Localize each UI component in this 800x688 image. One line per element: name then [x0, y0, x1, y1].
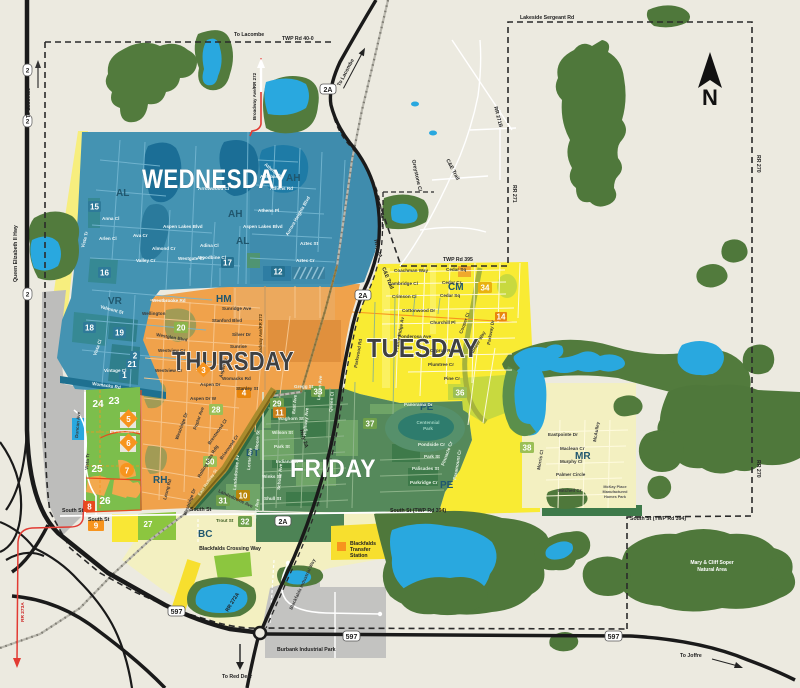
svg-text:TWP Rd 40-0: TWP Rd 40-0 — [282, 36, 314, 42]
svg-text:Maclean Cr: Maclean Cr — [560, 446, 585, 451]
svg-text:Aspen Lakes Blvd: Aspen Lakes Blvd — [163, 224, 203, 229]
svg-text:27: 27 — [144, 520, 153, 529]
svg-text:Shull St: Shull St — [264, 496, 282, 501]
svg-text:Station: Station — [350, 553, 368, 559]
svg-text:Aztec St: Aztec St — [300, 241, 319, 246]
svg-text:Cedar Sq: Cedar Sq — [446, 267, 466, 272]
svg-text:PE: PE — [440, 480, 454, 491]
svg-text:23: 23 — [108, 396, 120, 407]
svg-text:Stanford Blvd: Stanford Blvd — [212, 318, 242, 323]
svg-text:Aspen Lakes Blvd: Aspen Lakes Blvd — [243, 224, 283, 229]
svg-text:AH: AH — [228, 209, 242, 220]
svg-text:Sunridge Ave: Sunridge Ave — [222, 306, 252, 311]
svg-text:Stanley St: Stanley St — [236, 386, 259, 391]
svg-text:Ava Cr: Ava Cr — [133, 233, 148, 238]
svg-text:Queen Elizabeth II Hwy: Queen Elizabeth II Hwy — [13, 225, 19, 282]
svg-text:Indiana St: Indiana St — [276, 459, 298, 464]
svg-text:Westview Cr: Westview Cr — [158, 348, 185, 353]
svg-text:To Lacombe: To Lacombe — [26, 88, 32, 118]
svg-text:25: 25 — [91, 464, 103, 475]
svg-text:FRIDAY: FRIDAY — [290, 455, 376, 483]
svg-text:19: 19 — [115, 329, 124, 338]
svg-text:Arlen Cl: Arlen Cl — [99, 236, 117, 241]
svg-text:Pine Cr: Pine Cr — [444, 376, 460, 381]
svg-text:Crimson Cl: Crimson Cl — [392, 294, 417, 299]
svg-text:Blackfalds Crossing Way: Blackfalds Crossing Way — [199, 546, 261, 552]
svg-text:2: 2 — [133, 352, 138, 361]
svg-text:Cottonwood Dr: Cottonwood Dr — [402, 308, 435, 313]
svg-text:South St: South St — [62, 508, 84, 514]
svg-text:597: 597 — [608, 634, 620, 641]
svg-text:Lakeside Sergeant Rd: Lakeside Sergeant Rd — [520, 15, 574, 21]
svg-text:Parkridge Cr: Parkridge Cr — [410, 480, 438, 485]
svg-text:31: 31 — [219, 497, 228, 506]
svg-text:Trout St: Trout St — [216, 518, 234, 523]
svg-text:Anna Cl: Anna Cl — [102, 216, 119, 221]
svg-text:Park St: Park St — [424, 454, 440, 459]
svg-text:To Red Deer: To Red Deer — [222, 674, 252, 680]
svg-text:2: 2 — [26, 119, 30, 126]
svg-text:Homes Park: Homes Park — [604, 495, 627, 499]
svg-text:Park: Park — [423, 426, 433, 431]
svg-text:South St: South St — [88, 517, 110, 523]
svg-text:Aspen Dr: Aspen Dr — [200, 382, 221, 387]
svg-text:37: 37 — [366, 420, 375, 429]
svg-text:Sunrise: Sunrise — [230, 344, 247, 349]
svg-text:14: 14 — [497, 313, 506, 322]
svg-text:Centennial: Centennial — [416, 420, 439, 425]
svg-text:597: 597 — [171, 609, 183, 616]
svg-text:Eastpointe Dr: Eastpointe Dr — [548, 432, 578, 437]
svg-text:28: 28 — [212, 406, 221, 415]
svg-text:2A: 2A — [279, 519, 288, 526]
svg-text:2: 2 — [26, 68, 30, 75]
svg-text:South St (TWP Rd 394): South St (TWP Rd 394) — [630, 516, 686, 522]
svg-text:Aspen Dr W: Aspen Dr W — [190, 396, 217, 401]
svg-text:38: 38 — [523, 444, 532, 453]
svg-text:HM: HM — [216, 294, 232, 305]
svg-text:Mitchell Cr: Mitchell Cr — [558, 488, 582, 493]
svg-text:AL: AL — [116, 188, 129, 199]
svg-text:To Joffre: To Joffre — [680, 653, 702, 659]
svg-text:THURSDAY: THURSDAY — [172, 346, 294, 376]
svg-text:Burbank Industrial Park: Burbank Industrial Park — [277, 647, 336, 653]
svg-text:Plumtree Cr: Plumtree Cr — [428, 362, 454, 367]
svg-text:2: 2 — [26, 292, 30, 299]
svg-text:Arrowwood Cl: Arrowwood Cl — [198, 186, 229, 191]
svg-text:Gregg St: Gregg St — [294, 384, 314, 389]
svg-text:26: 26 — [99, 496, 111, 507]
svg-text:8: 8 — [87, 503, 92, 512]
svg-text:Almond Cr: Almond Cr — [152, 246, 176, 251]
svg-text:AH: AH — [286, 173, 300, 184]
svg-text:36: 36 — [456, 389, 465, 398]
svg-text:Silver Dr: Silver Dr — [232, 332, 251, 337]
svg-text:RR 270: RR 270 — [755, 155, 761, 173]
svg-text:Waghorn St: Waghorn St — [278, 416, 304, 421]
svg-text:Cedar Cr: Cedar Cr — [442, 280, 462, 285]
svg-text:Adina Cl: Adina Cl — [200, 243, 219, 248]
svg-text:6: 6 — [126, 439, 131, 448]
svg-text:16: 16 — [100, 269, 109, 278]
svg-text:Cyprus Rd: Cyprus Rd — [430, 348, 453, 353]
svg-text:Broadway Ave/RR 272: Broadway Ave/RR 272 — [252, 72, 257, 120]
svg-text:VR: VR — [108, 296, 123, 307]
svg-text:Athabasca: Athabasca — [260, 174, 284, 179]
svg-text:BC: BC — [198, 529, 212, 540]
svg-text:Mary & Cliff Soper: Mary & Cliff Soper — [690, 560, 733, 566]
svg-text:3: 3 — [201, 366, 206, 375]
svg-text:Natural Area: Natural Area — [697, 567, 727, 573]
svg-text:Athens Rd: Athens Rd — [270, 186, 293, 191]
svg-text:Wellington: Wellington — [142, 311, 166, 316]
svg-text:Wilson St: Wilson St — [272, 430, 293, 435]
svg-text:South St (TWP Rd 394): South St (TWP Rd 394) — [390, 508, 446, 514]
svg-text:34: 34 — [481, 284, 490, 293]
svg-text:597: 597 — [346, 634, 358, 641]
svg-text:Westview Cr: Westview Cr — [155, 368, 182, 373]
svg-text:18: 18 — [85, 324, 94, 333]
svg-text:RR 271: RR 271 — [511, 185, 517, 203]
svg-text:5: 5 — [126, 415, 131, 424]
svg-text:N: N — [702, 85, 718, 110]
svg-text:South St: South St — [190, 507, 212, 513]
svg-text:12: 12 — [274, 268, 283, 277]
svg-text:Vintage Cl: Vintage Cl — [104, 368, 126, 373]
svg-text:Manufactured: Manufactured — [603, 490, 629, 494]
svg-text:Aztec Cr: Aztec Cr — [296, 258, 315, 263]
svg-text:TWP Rd 395: TWP Rd 395 — [443, 257, 473, 263]
svg-text:Panorama Dr: Panorama Dr — [404, 402, 433, 407]
svg-text:Palmer Circle: Palmer Circle — [556, 472, 586, 477]
svg-text:15: 15 — [90, 203, 99, 212]
svg-text:Park St: Park St — [274, 444, 290, 449]
svg-text:Murphy Cl: Murphy Cl — [560, 459, 582, 464]
svg-text:Womacks Rd: Womacks Rd — [222, 376, 251, 381]
svg-text:Pondside Cr: Pondside Cr — [418, 442, 445, 447]
svg-text:20: 20 — [177, 324, 186, 333]
svg-text:21: 21 — [128, 360, 137, 369]
svg-text:2A: 2A — [359, 293, 368, 300]
svg-text:AL: AL — [236, 236, 249, 247]
svg-text:24: 24 — [92, 399, 104, 410]
svg-text:Cambridge Cl: Cambridge Cl — [388, 281, 418, 286]
svg-text:Cedar Sq: Cedar Sq — [440, 293, 460, 298]
svg-text:Westbrooke Rd: Westbrooke Rd — [152, 298, 186, 303]
svg-text:Ponderosa Ave: Ponderosa Ave — [398, 334, 432, 339]
svg-text:7: 7 — [125, 467, 130, 476]
svg-text:McKay Place: McKay Place — [603, 485, 626, 489]
svg-text:32: 32 — [241, 518, 250, 527]
svg-text:Palisades St: Palisades St — [412, 466, 440, 471]
svg-text:RR 273A: RR 273A — [20, 602, 26, 622]
svg-text:Coachman Way: Coachman Way — [394, 268, 428, 273]
svg-text:Woodbine Cl: Woodbine Cl — [198, 255, 226, 260]
svg-text:Churchill Pl: Churchill Pl — [430, 320, 456, 325]
svg-text:Valley Cr: Valley Cr — [136, 258, 156, 263]
svg-text:Athens Pl: Athens Pl — [258, 208, 279, 213]
svg-text:RR 270: RR 270 — [755, 460, 761, 478]
svg-text:2A: 2A — [324, 87, 333, 94]
svg-text:To Lacombe: To Lacombe — [234, 32, 264, 38]
